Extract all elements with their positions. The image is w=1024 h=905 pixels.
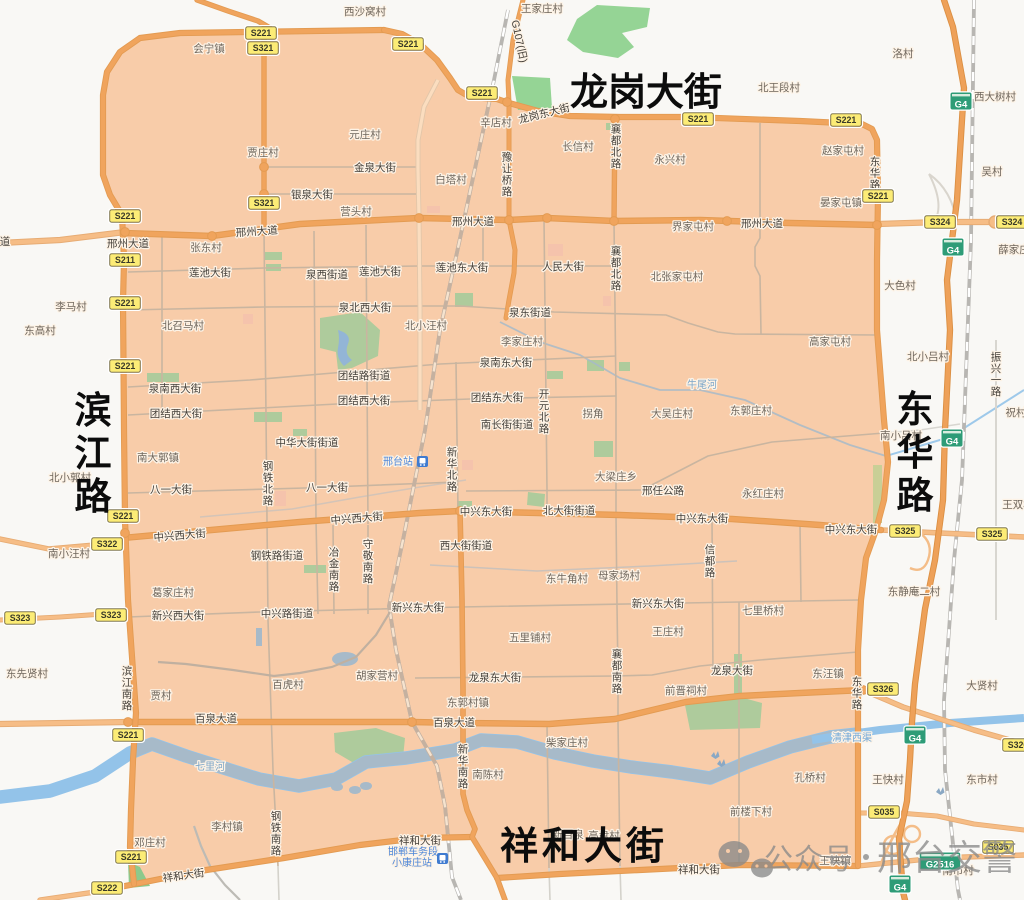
svg-text:八一大街: 八一大街 [150, 483, 192, 496]
svg-text:S221: S221 [688, 114, 709, 124]
svg-text:铁: 铁 [271, 821, 282, 834]
svg-text:襄: 襄 [611, 245, 622, 258]
svg-text:东高村: 东高村 [24, 324, 56, 337]
svg-text:信: 信 [705, 544, 716, 556]
svg-text:路: 路 [458, 777, 469, 790]
svg-text:新兴西大街: 新兴西大街 [152, 609, 205, 622]
svg-text:王双村: 王双村 [1002, 498, 1024, 511]
svg-text:路: 路 [539, 422, 550, 435]
svg-text:大吴庄村: 大吴庄村 [651, 407, 693, 420]
svg-text:王快村: 王快村 [872, 773, 904, 786]
svg-text:南大郭镇: 南大郭镇 [137, 451, 179, 464]
svg-text:牛尾河: 牛尾河 [687, 378, 717, 391]
svg-text:泉南西大街: 泉南西大街 [149, 382, 202, 395]
svg-text:S322: S322 [97, 539, 118, 549]
svg-text:S222: S222 [97, 883, 118, 893]
svg-text:北: 北 [447, 470, 458, 482]
svg-text:莲池东大街: 莲池东大街 [436, 261, 489, 274]
svg-text:S325: S325 [895, 526, 916, 536]
svg-text:新: 新 [447, 446, 458, 459]
svg-text:李村镇: 李村镇 [211, 820, 243, 833]
svg-text:道: 道 [0, 235, 11, 248]
svg-text:七里桥村: 七里桥村 [742, 604, 784, 617]
svg-text:路: 路 [122, 699, 133, 712]
svg-text:路: 路 [612, 682, 623, 695]
svg-text:东市村: 东市村 [966, 773, 998, 786]
svg-text:邢州大道: 邢州大道 [452, 215, 494, 228]
svg-text:S211: S211 [115, 255, 135, 265]
svg-text:G4: G4 [894, 883, 907, 894]
svg-text:东郭村镇: 东郭村镇 [447, 696, 489, 709]
svg-text:祥和大街: 祥和大街 [500, 826, 668, 868]
svg-text:永红庄村: 永红庄村 [742, 487, 784, 500]
svg-text:新兴东大街: 新兴东大街 [392, 601, 445, 614]
svg-text:金泉大街: 金泉大街 [354, 161, 396, 174]
svg-text:银泉大街: 银泉大街 [291, 188, 333, 201]
svg-text:清津西渠: 清津西渠 [832, 731, 872, 744]
svg-text:东静庵二村: 东静庵二村 [888, 585, 941, 598]
svg-text:张东村: 张东村 [190, 241, 222, 254]
svg-text:S221: S221 [115, 361, 136, 371]
svg-text:G4: G4 [909, 734, 922, 745]
svg-text:东汪镇: 东汪镇 [812, 667, 844, 680]
svg-text:北: 北 [611, 147, 622, 159]
svg-text:人民大街: 人民大街 [542, 260, 584, 273]
svg-text:南: 南 [329, 569, 340, 582]
svg-text:S323: S323 [10, 613, 31, 623]
svg-text:G4: G4 [946, 437, 959, 448]
svg-text:G4: G4 [947, 246, 960, 257]
svg-text:S221: S221 [113, 511, 134, 521]
svg-text:钢铁路街道: 钢铁路街道 [251, 549, 304, 562]
svg-text:邓庄村: 邓庄村 [134, 836, 166, 849]
svg-text:南: 南 [612, 671, 623, 684]
svg-text:兴: 兴 [991, 363, 1002, 375]
svg-text:桥: 桥 [502, 175, 513, 187]
svg-text:新兴东大街: 新兴东大街 [632, 597, 685, 610]
svg-text:西沙窝村: 西沙窝村 [344, 5, 386, 18]
svg-text:高家屯村: 高家屯村 [809, 335, 851, 348]
svg-text:铁: 铁 [263, 471, 274, 484]
svg-text:邢州大道: 邢州大道 [107, 237, 149, 250]
svg-text:都: 都 [611, 135, 622, 147]
svg-text:S221: S221 [115, 211, 136, 221]
svg-text:S221: S221 [868, 191, 889, 201]
svg-text:东郭庄村: 东郭庄村 [730, 404, 772, 417]
svg-text:晏家屯镇: 晏家屯镇 [820, 196, 862, 209]
svg-text:S324: S324 [1002, 217, 1023, 227]
svg-text:南小汪村: 南小汪村 [48, 547, 90, 560]
svg-text:东: 东 [852, 675, 863, 688]
svg-text:东: 东 [870, 155, 881, 168]
svg-text:路: 路 [271, 844, 282, 857]
svg-text:豫: 豫 [502, 151, 513, 164]
svg-text:祥和大街: 祥和大街 [678, 863, 720, 876]
svg-text:新: 新 [458, 743, 469, 756]
svg-text:华: 华 [458, 754, 469, 767]
svg-text:辛店村: 辛店村 [480, 116, 512, 129]
svg-text:江: 江 [75, 433, 112, 474]
svg-text:S325: S325 [982, 529, 1003, 539]
svg-text:龙岗大街: 龙岗大街 [570, 72, 722, 114]
svg-text:北: 北 [611, 269, 622, 281]
svg-text:龙泉东大街: 龙泉东大街 [469, 671, 522, 684]
svg-text:团结路街道: 团结路街道 [338, 369, 391, 382]
svg-text:路: 路 [363, 572, 374, 585]
svg-text:南陈村: 南陈村 [472, 768, 504, 781]
svg-text:S321: S321 [254, 198, 275, 208]
svg-text:南: 南 [271, 833, 282, 846]
svg-text:路: 路 [263, 494, 274, 507]
svg-text:八一大街: 八一大街 [306, 481, 348, 494]
svg-text:敬: 敬 [363, 549, 374, 562]
svg-text:北大街街道: 北大街街道 [543, 504, 596, 517]
svg-text:王家庄村: 王家庄村 [521, 2, 563, 15]
svg-text:北王段村: 北王段村 [758, 81, 800, 94]
svg-text:赵家屯村: 赵家屯村 [822, 144, 864, 157]
svg-text:泉东街道: 泉东街道 [509, 306, 551, 319]
svg-text:东先贤村: 东先贤村 [6, 667, 48, 680]
svg-text:金: 金 [329, 557, 340, 570]
svg-text:冶: 冶 [329, 546, 340, 559]
svg-text:贾村: 贾村 [151, 689, 172, 702]
svg-text:祥和大街: 祥和大街 [399, 834, 441, 847]
svg-text:李家庄村: 李家庄村 [501, 335, 543, 348]
svg-text:邢任公路: 邢任公路 [642, 484, 684, 497]
svg-text:北召马村: 北召马村 [162, 319, 204, 332]
svg-text:华: 华 [897, 432, 934, 473]
svg-text:襄: 襄 [612, 648, 623, 661]
svg-text:让: 让 [502, 163, 513, 175]
svg-text:滨: 滨 [75, 390, 112, 431]
svg-text:莲池大街: 莲池大街 [359, 265, 401, 278]
svg-text:李马村: 李马村 [55, 300, 87, 313]
svg-text:邯郸车务段: 邯郸车务段 [388, 845, 438, 858]
svg-text:南: 南 [363, 561, 374, 574]
svg-text:母家场村: 母家场村 [598, 569, 640, 582]
svg-text:长信村: 长信村 [562, 140, 594, 153]
svg-text:白塔村: 白塔村 [435, 173, 467, 186]
svg-text:七里河: 七里河 [195, 761, 225, 773]
svg-text:邢台站: 邢台站 [383, 455, 413, 468]
svg-text:胡家营村: 胡家营村 [356, 669, 398, 682]
svg-text:公众号: 公众号 [764, 844, 854, 876]
svg-text:拐角: 拐角 [583, 407, 604, 420]
svg-text:元: 元 [539, 400, 550, 412]
svg-text:都: 都 [612, 660, 623, 672]
svg-text:洛村: 洛村 [893, 47, 914, 60]
svg-text:界家屯村: 界家屯村 [672, 220, 714, 233]
svg-text:团结西大街: 团结西大街 [150, 407, 203, 420]
svg-text:路: 路 [705, 566, 716, 579]
svg-text:都: 都 [611, 257, 622, 269]
svg-text:S221: S221 [472, 88, 493, 98]
svg-text:S326: S326 [1008, 740, 1024, 750]
svg-text:团结西大街: 团结西大街 [338, 394, 391, 407]
svg-text:前晋祠村: 前晋祠村 [665, 684, 707, 697]
svg-text:大梁庄乡: 大梁庄乡 [595, 470, 637, 483]
svg-text:邢台交警: 邢台交警 [877, 839, 1017, 878]
svg-text:振: 振 [991, 351, 1002, 364]
svg-text:G4: G4 [955, 100, 968, 111]
svg-text:吴村: 吴村 [982, 165, 1003, 178]
svg-text:莲池大街: 莲池大街 [189, 266, 231, 279]
svg-text:华: 华 [447, 457, 458, 470]
svg-text:路: 路 [329, 580, 340, 593]
svg-text:柴家庄村: 柴家庄村 [546, 736, 588, 749]
svg-text:路: 路 [991, 385, 1002, 398]
svg-text:开: 开 [539, 389, 550, 401]
svg-text:路: 路 [75, 476, 113, 517]
svg-text:S221: S221 [836, 115, 857, 125]
svg-text:S221: S221 [121, 852, 142, 862]
svg-text:王庄村: 王庄村 [652, 625, 684, 638]
svg-text:路: 路 [611, 279, 622, 292]
svg-text:中兴东大街: 中兴东大街 [460, 505, 513, 518]
svg-text:S221: S221 [118, 730, 139, 740]
svg-text:祝村: 祝村 [1006, 406, 1024, 419]
svg-text:钢: 钢 [263, 460, 274, 473]
svg-text:南: 南 [122, 688, 133, 701]
svg-text:路: 路 [852, 698, 863, 711]
svg-text:中兴路街道: 中兴路街道 [261, 607, 314, 620]
svg-text:百泉大道: 百泉大道 [195, 712, 237, 725]
svg-text:营头村: 营头村 [340, 205, 372, 218]
svg-text:大色村: 大色村 [884, 279, 916, 292]
svg-text:路: 路 [502, 185, 513, 198]
svg-text:南: 南 [458, 766, 469, 779]
svg-text:S326: S326 [873, 684, 894, 694]
svg-text:襄: 襄 [611, 123, 622, 136]
svg-text:东牛角村: 东牛角村 [546, 572, 588, 585]
svg-text:西大街街道: 西大街街道 [440, 539, 493, 552]
svg-text:前楼下村: 前楼下村 [730, 805, 772, 818]
svg-text:S321: S321 [253, 43, 274, 53]
svg-text:邢州大道: 邢州大道 [741, 217, 783, 230]
svg-text:S035: S035 [874, 807, 895, 817]
svg-text:永兴村: 永兴村 [654, 153, 686, 166]
svg-text:西大树村: 西大树村 [974, 90, 1016, 103]
svg-text:泉西街道: 泉西街道 [306, 268, 348, 281]
svg-text:大贤村: 大贤村 [966, 679, 998, 692]
svg-text:贾庄村: 贾庄村 [247, 146, 279, 159]
svg-text:S221: S221 [398, 39, 419, 49]
svg-text:S221: S221 [251, 28, 272, 38]
svg-text:北张家屯村: 北张家屯村 [651, 270, 704, 283]
svg-text:百泉大道: 百泉大道 [433, 716, 475, 729]
svg-text:龙泉大街: 龙泉大街 [711, 664, 753, 677]
svg-text:小康庄站: 小康庄站 [392, 856, 432, 869]
svg-text:中兴东大街: 中兴东大街 [825, 523, 878, 536]
svg-text:S323: S323 [101, 610, 122, 620]
svg-text:路: 路 [897, 475, 935, 516]
svg-text:华: 华 [870, 167, 881, 180]
svg-text:北小汪村: 北小汪村 [405, 319, 447, 332]
svg-text:北: 北 [263, 484, 274, 496]
svg-text:钢: 钢 [271, 810, 282, 823]
svg-text:孔桥村: 孔桥村 [794, 771, 826, 784]
svg-text:都: 都 [705, 556, 716, 568]
svg-text:泉北西大街: 泉北西大街 [339, 301, 392, 314]
svg-text:百虎村: 百虎村 [272, 678, 304, 691]
svg-text:S221: S221 [115, 298, 136, 308]
svg-text:中华大街街道: 中华大街街道 [276, 436, 339, 449]
svg-text:中兴东大街: 中兴东大街 [676, 512, 729, 525]
svg-text:守: 守 [363, 538, 374, 551]
svg-text:五里铺村: 五里铺村 [509, 631, 551, 644]
svg-text:滨: 滨 [122, 665, 133, 678]
svg-text:薛家庄: 薛家庄 [998, 243, 1024, 256]
svg-text:路: 路 [447, 480, 458, 493]
svg-text:华: 华 [852, 687, 863, 700]
svg-text:一: 一 [991, 375, 1002, 387]
svg-text:路: 路 [611, 157, 622, 170]
svg-text:元庄村: 元庄村 [349, 128, 381, 141]
svg-text:北: 北 [539, 412, 550, 424]
svg-text:南长街街道: 南长街街道 [481, 418, 534, 431]
svg-text:S324: S324 [930, 217, 951, 227]
svg-text:江: 江 [122, 677, 133, 689]
svg-text:东: 东 [897, 389, 934, 430]
svg-text:葛家庄村: 葛家庄村 [152, 586, 194, 599]
svg-text:会宁镇: 会宁镇 [193, 42, 225, 55]
svg-text:团结东大街: 团结东大街 [471, 391, 524, 404]
svg-text:泉南东大街: 泉南东大街 [480, 356, 533, 369]
svg-text:北小吕村: 北小吕村 [907, 350, 949, 363]
